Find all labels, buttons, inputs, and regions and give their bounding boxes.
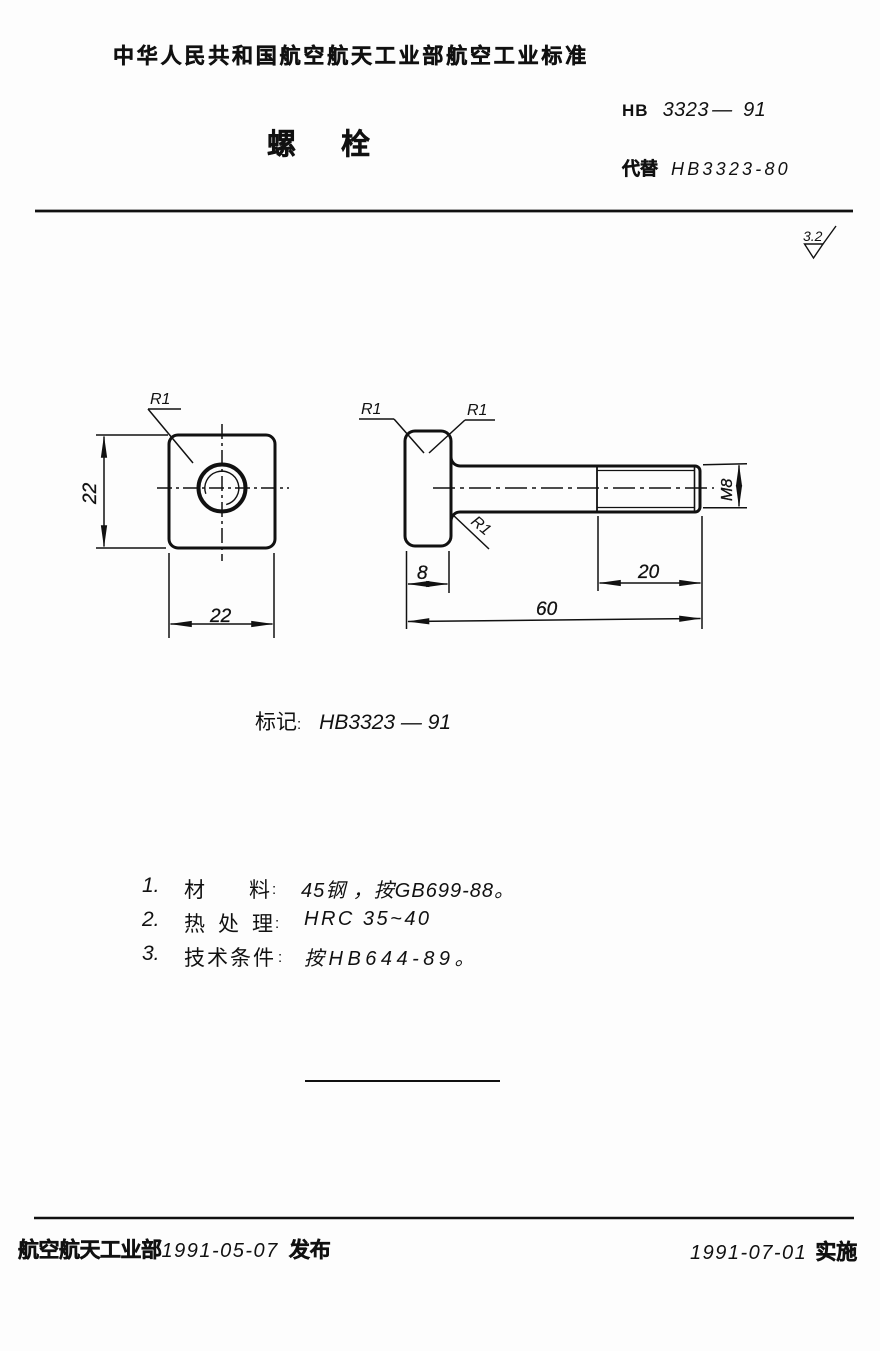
- svg-text:R1: R1: [467, 513, 494, 539]
- svg-text:20: 20: [637, 562, 660, 583]
- svg-text:3.2: 3.2: [803, 228, 823, 244]
- svg-text:8: 8: [417, 563, 428, 584]
- svg-text:R1: R1: [150, 391, 170, 408]
- svg-text:22: 22: [80, 482, 101, 505]
- svg-text:22: 22: [209, 606, 232, 627]
- svg-text:R1: R1: [361, 401, 381, 418]
- svg-text:M8: M8: [719, 479, 736, 501]
- svg-text:R1: R1: [467, 402, 487, 419]
- svg-text:60: 60: [536, 599, 558, 620]
